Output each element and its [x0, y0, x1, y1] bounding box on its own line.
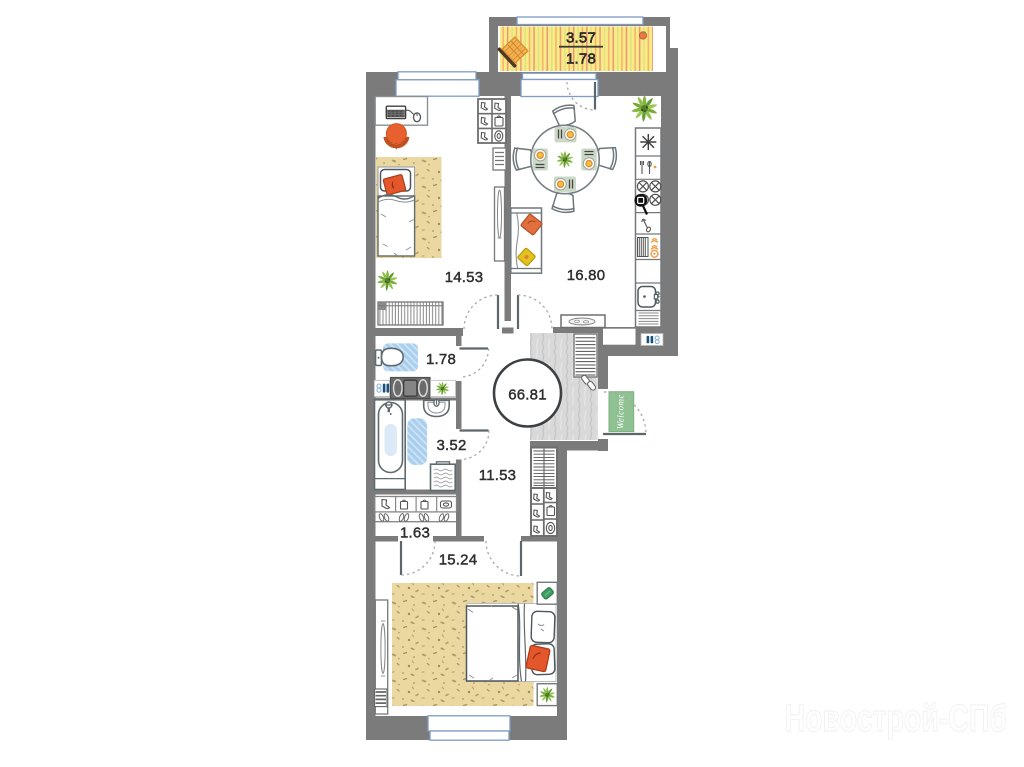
svg-text:11.53: 11.53: [479, 467, 516, 484]
svg-text:1.78: 1.78: [426, 351, 456, 368]
svg-text:15.24: 15.24: [439, 552, 478, 569]
svg-text:Welcome: Welcome: [616, 394, 626, 429]
svg-text:14.53: 14.53: [445, 269, 484, 286]
svg-text:3.52: 3.52: [437, 437, 467, 454]
svg-text:3.57: 3.57: [566, 30, 596, 47]
svg-text:16.80: 16.80: [567, 267, 606, 284]
svg-text:1.63: 1.63: [400, 525, 430, 542]
svg-text:Новострой-СПб: Новострой-СПб: [785, 698, 1007, 740]
svg-text:1.78: 1.78: [566, 51, 596, 68]
svg-text:66.81: 66.81: [508, 387, 547, 404]
